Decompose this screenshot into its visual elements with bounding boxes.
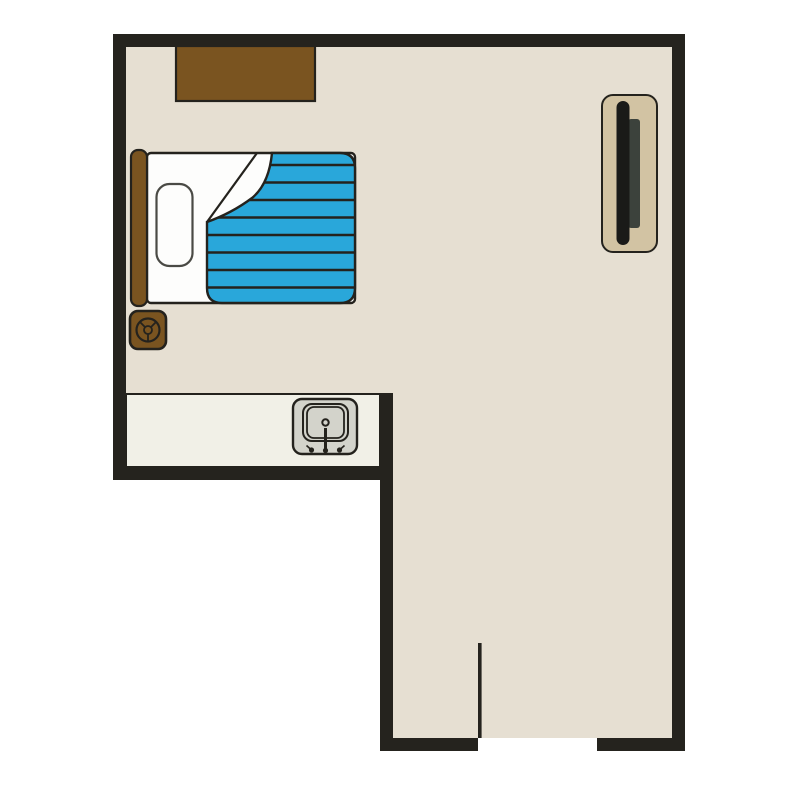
tv-screen [617, 101, 630, 245]
floorplan-canvas: L-shaped studio room Kitchenette counter… [0, 0, 800, 800]
bed: Single bed Blue striped duvet with folde… [131, 150, 357, 306]
door: Entry door, open [478, 643, 482, 738]
speaker-body [130, 311, 166, 349]
door-leaf [478, 643, 482, 738]
wall-left-leg-bottom [113, 467, 393, 480]
faucet-dot-center-icon [323, 448, 328, 453]
floor-area [126, 47, 672, 738]
tv-back-panel [628, 119, 640, 228]
speaker: Bedside speaker unit [130, 311, 166, 349]
wardrobe: Wardrobe dresser against top wall [176, 46, 315, 101]
wall-top [113, 34, 685, 47]
wall-right [672, 34, 685, 751]
floorplan-drawing: L-shaped studio room Kitchenette counter… [0, 0, 800, 800]
wall-bottom-left-segment [380, 738, 478, 751]
sink: Sink with faucet [293, 399, 357, 454]
bed-headboard: Bed headboard [131, 150, 147, 306]
wall-bottom-right-segment [597, 738, 685, 751]
wall-notch-vertical [380, 393, 393, 751]
kitchen-counter: Kitchenette counter Sink with faucet [126, 394, 380, 467]
tv: Flat screen TV [617, 101, 641, 245]
pillow [157, 184, 193, 266]
wall-left [113, 34, 126, 480]
room-floor: L-shaped studio room [126, 47, 672, 738]
wardrobe-body [176, 46, 315, 101]
tv-unit: TV stand Flat screen TV [602, 95, 657, 252]
